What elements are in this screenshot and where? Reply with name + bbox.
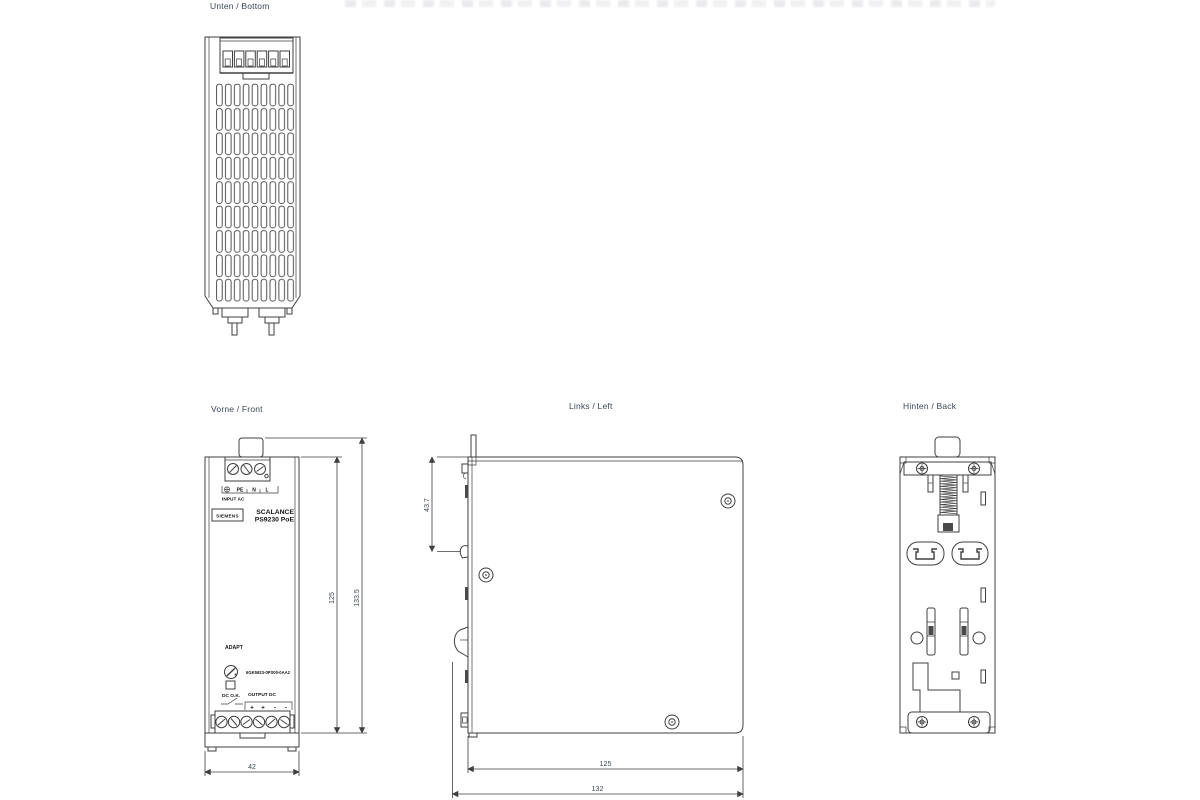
article-number: 6GK5923-0PS00-0AA2 (246, 670, 291, 675)
product-name-line2: PS9230 PoE (255, 517, 295, 524)
terminal-screw (241, 716, 252, 727)
brand-text: SIEMENS (216, 514, 239, 519)
bottom-terminal-block (220, 38, 293, 79)
branding-group: SIEMENS SCALANCE PS9230 PoE (212, 509, 294, 524)
din-release-tab (935, 437, 960, 457)
terminal-screw (228, 464, 239, 475)
adjust-label: ADAPT (225, 645, 244, 651)
din-rail-spring-slider (928, 475, 968, 532)
phillips-screw (917, 717, 928, 728)
terminal-tab (240, 733, 265, 738)
output-terminal-plus2: + (261, 705, 265, 712)
dc-ok-label: DC O.K. (222, 693, 240, 699)
terminal-tab (243, 73, 269, 79)
dc-ok-led-icon (226, 681, 235, 689)
terminal-screw (266, 716, 277, 727)
view-label-bottom: Unten / Bottom (210, 1, 270, 11)
right-pin (269, 323, 274, 335)
spring-clip (454, 627, 468, 657)
dim-rail-offset: 43.7 (424, 498, 431, 512)
dim-total-depth: 132 (592, 786, 604, 793)
dim-depth: 125 (600, 761, 612, 768)
mounting-hole (911, 632, 923, 644)
din-rail-clip-side (454, 464, 477, 737)
top-pin (471, 435, 476, 457)
output-terminal-plus1: + (250, 705, 254, 712)
phillips-screw (969, 463, 980, 474)
top-mounting-bracket (900, 462, 995, 475)
phillips-screw (969, 717, 980, 728)
bottom-clip (461, 713, 477, 737)
hanger-cutouts (907, 542, 988, 565)
ventilation-grid (215, 83, 295, 303)
adjust-group: ADAPT 6GK5923-0PS00-0AA2 (225, 645, 291, 679)
front-view-drawing: PE N L INPUT AC SIEMENS SCALANCE PS9230 … (195, 430, 380, 790)
housing-screw (665, 715, 679, 729)
phillips-screw (917, 463, 928, 474)
terminal-screw (253, 716, 264, 727)
front-body-outline (205, 438, 299, 733)
back-body-outline (900, 437, 995, 733)
mid-hook (460, 546, 468, 558)
terminal-screw (228, 716, 239, 727)
mounting-hole (973, 632, 985, 644)
output-label-group: DC O.K. OUTPUT DC + + - - (221, 681, 292, 712)
view-label-back: Hinten / Back (903, 401, 956, 411)
terminal-cells (223, 51, 290, 67)
view-label-left: Links / Left (569, 401, 613, 411)
product-name-line1: SCALANCE (256, 509, 294, 516)
vent-slot-strips (927, 608, 968, 655)
front-input-terminal-block (225, 457, 270, 481)
back-view-drawing (880, 430, 1015, 740)
front-bottom-skirt (205, 733, 299, 751)
input-caption: INPUT AC (222, 497, 245, 503)
view-label-front: Vorne / Front (211, 404, 263, 414)
terminal-label-n: N (252, 488, 256, 494)
output-terminal-minus1: - (274, 705, 276, 712)
small-screw (265, 474, 268, 477)
stepped-cutout (913, 663, 960, 712)
din-release-tab (239, 438, 263, 457)
pe-screw-icon (224, 487, 229, 492)
bottom-mounting-feet (213, 308, 292, 335)
technical-drawing-page: Unten / Bottom Vorne / Front Links / Lef… (0, 0, 1200, 800)
dim-total-height: 133.5 (354, 589, 361, 607)
input-label-group: PE N L INPUT AC (222, 486, 278, 503)
terminal-screw (255, 464, 266, 475)
left-pin (232, 323, 237, 335)
bottom-view-drawing (195, 25, 310, 340)
dim-width: 42 (248, 764, 256, 771)
output-terminal-minus2: - (285, 705, 287, 712)
left-body-outline (468, 435, 743, 733)
output-caption: OUTPUT DC (248, 692, 277, 698)
dim-body-height: 125 (329, 592, 336, 604)
housing-screw (479, 568, 493, 582)
cropped-text-remnant (345, 0, 995, 7)
terminal-label-pe: PE (237, 488, 244, 494)
bottom-mounting-bracket (908, 712, 990, 733)
spring-coil (940, 476, 957, 514)
front-output-terminal-block (211, 711, 294, 738)
left-view-drawing: 43.7 125 132 (425, 430, 775, 800)
side-slots (952, 492, 986, 683)
terminal-screw (278, 716, 289, 727)
terminal-screw (241, 464, 252, 475)
housing-screw (721, 494, 735, 508)
terminal-screw (216, 716, 227, 727)
terminal-label-l: L (265, 488, 268, 494)
potentiometer-icon (225, 666, 238, 679)
